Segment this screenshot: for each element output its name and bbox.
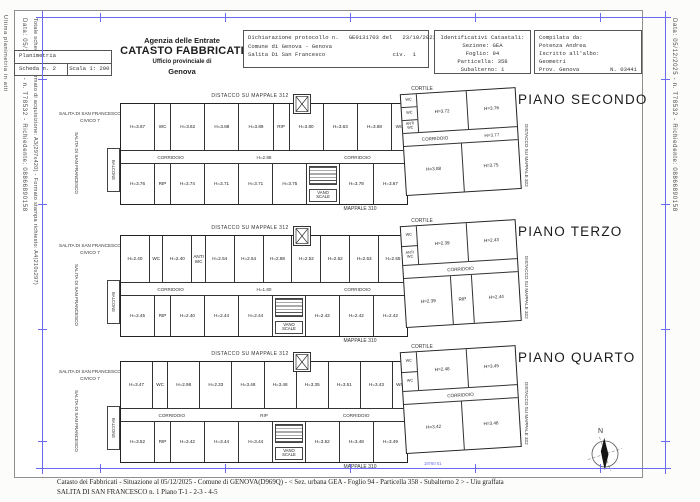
room-height-label: WC (156, 382, 164, 387)
room-height-label: H=2.43 (315, 313, 330, 318)
room-height-label: H=2.52 (299, 256, 314, 261)
declaration-street: Salita Di San Francesco (248, 51, 325, 60)
street-vertical-label: SALITA DI SAN FRANCESCO (74, 390, 79, 458)
room-height-label: H=3.62 (180, 124, 195, 129)
corridor-row: CORRIDOIOH=2.88CORRIDOIO (121, 150, 407, 164)
calibration-tick (100, 464, 101, 473)
stairwell-cell: VANO SCALE (273, 296, 305, 336)
cadastral-particella: Particella: 358 (439, 58, 526, 66)
calibration-tick (661, 329, 670, 330)
wing-bottom-row: H=3.42H=3.48 (404, 398, 521, 453)
room-cell: RIP (274, 104, 290, 150)
stairwell-cell: VANO SCALE (273, 422, 305, 462)
room-height-label: H=2.88 (270, 256, 285, 261)
room-height-label: H=3.42 (426, 424, 441, 430)
planimetria-label: Planimetria (15, 51, 111, 64)
room-height-label: H=3.75 (483, 163, 498, 169)
room-height-label: H=3.80 (299, 124, 314, 129)
declaration-protocol: Dichiarazione protocollo n. GE0131703 de… (248, 34, 424, 43)
scala-label: Scala 1: 200 (67, 64, 111, 76)
calibration-tick (225, 464, 226, 473)
calibration-tick (38, 204, 47, 205)
room-cell: RIP (155, 422, 171, 462)
room-cell: H=3.75 (273, 164, 307, 204)
agency-name: Agenzia delle Entrate (120, 36, 244, 45)
stairwell-label: VANO SCALE (275, 447, 302, 460)
room-cell: H=3.42 (171, 422, 205, 462)
room-height-label: RIP (159, 313, 167, 318)
corridor-label: CORRIDOIO (157, 287, 184, 292)
agency-block: Agenzia delle Entrate CATASTO FABBRICATI… (120, 36, 244, 76)
margin-text-ultima: Ultima planimetria in atti (2, 15, 8, 92)
building-wing-block: WCWCANTI WCH=3.72H=3.76CORRIDOIOH=3.77H=… (400, 87, 522, 196)
room-cell: H=2.43 (306, 296, 340, 336)
room-height-label: RIP (458, 297, 466, 303)
room-cell: H=3.47 (121, 362, 153, 408)
room-cell: WC (150, 236, 164, 282)
calibration-frame-line (665, 11, 666, 474)
room-cell: H=3.71 (205, 164, 239, 204)
room-cell: H=2.44 (205, 296, 239, 336)
cadastral-title: Identificativi Catastali: (439, 34, 526, 42)
room-cell: WC (155, 104, 171, 150)
corridor-label: CORRIDOIO (157, 155, 184, 160)
room-cell: H=3.72 (417, 91, 469, 132)
corridor-row: CORRIDOIOH=1.80CORRIDOIO (121, 282, 407, 296)
room-height-label: H=2.40 (180, 313, 195, 318)
room-height-label: H=3.48 (240, 382, 255, 387)
rooms-top-row: H=3.47WCH=2.98H=2.33H=3.48H=3.48H=3.35H=… (121, 362, 407, 408)
room-height-label: H=2.43 (484, 238, 499, 244)
planimetria-scala-box: Planimetria Scheda n. 2 Scala 1: 200 (14, 50, 112, 76)
calibration-frame-line (36, 17, 671, 18)
room-height-label: H=3.88 (426, 166, 441, 172)
room-cell: H=3.71 (239, 164, 273, 204)
balcone-label: BALCONE (111, 418, 116, 438)
building-main-block: H=3.47WCH=2.98H=2.33H=3.48H=3.48H=3.35H=… (120, 361, 408, 463)
elevator-shaft-icon (293, 226, 311, 246)
room-cell: H=3.48 (232, 362, 264, 408)
stairwell-cell: VANO SCALE (307, 164, 339, 204)
room-height-label: H=3.52 (315, 439, 330, 444)
mappale-label: MAPPALE 310 (290, 464, 430, 470)
plan-title: PIANO TERZO (518, 224, 622, 239)
rooms-bottom-row: H=3.76RIPH=3.74H=3.71H=3.71H=3.75VANO SC… (121, 164, 407, 204)
room-cell: H=3.48 (265, 362, 297, 408)
calibration-tick (475, 464, 476, 473)
room-height-label: H=3.48 (349, 439, 364, 444)
plan-title: PIANO QUARTO (518, 350, 635, 365)
room-height-label: H=2.62 (328, 256, 343, 261)
calibration-tick (600, 13, 601, 22)
building-main-block: H=2.40WCH=2.40ANTI WCH=2.54H=2.54H=2.88H… (120, 235, 408, 337)
room-height-label: H=3.88 (367, 124, 382, 129)
compiler-name: Potenza Andrea (539, 42, 637, 50)
room-cell: H=2.43 (466, 220, 517, 261)
room-height-label: H=2.40 (127, 256, 142, 261)
calibration-tick (225, 13, 226, 22)
room-height-label: H=3.88 (214, 124, 229, 129)
room-cell: H=3.44 (239, 422, 273, 462)
room-cell: H=3.67 (374, 164, 407, 204)
calibration-tick (38, 79, 47, 80)
balcone-tab: BALCONE (107, 148, 120, 192)
room-cell: H=3.63 (324, 104, 358, 150)
distacco-right-label: DISTACCO SU MAPPALE 322 (524, 382, 529, 462)
room-height-label: H=2.42 (383, 313, 398, 318)
margin-text-right: Data: 05/12/2025 - n. T78532 - Richieden… (671, 18, 677, 212)
room-height-label: RIP (159, 181, 167, 186)
room-cell: H=2.39 (404, 276, 454, 327)
calibration-tick (100, 13, 101, 22)
compiler-albo: Iscritto all'albo: (539, 50, 637, 58)
margin-text-left-1: Data: 05/12/2025 - n. T78532 - Richieden… (21, 18, 27, 212)
corridor-label: CORRIDOIO (343, 413, 370, 418)
compiler-title: Compilata da: (539, 34, 637, 42)
room-cell: H=3.76 (466, 88, 517, 129)
compiler-box: Compilata da: Potenza Andrea Iscritto al… (534, 30, 642, 74)
plan-title: PIANO SECONDO (518, 92, 648, 107)
calibration-tick (38, 441, 47, 442)
wing-side-cell: WC (402, 372, 418, 391)
room-cell: H=3.89 (239, 104, 273, 150)
catasto-title: CATASTO FABBRICATI (120, 45, 244, 59)
room-height-label: H=3.67 (130, 124, 145, 129)
stairwell-label: VANO SCALE (309, 189, 336, 202)
room-height-label: H=2.39 (421, 299, 436, 305)
room-cell: H=3.43 (361, 362, 393, 408)
distacco-top-label: DISTACCO SU MAPPALE 312 (150, 351, 350, 357)
room-cell: H=3.48 (461, 398, 520, 449)
room-height-label: H=2.45 (130, 313, 145, 318)
room-cell: H=2.42 (374, 296, 407, 336)
wing-top-row: WCWCANTI WCH=3.72H=3.76 (401, 88, 517, 133)
stairwell-label: VANO SCALE (275, 321, 302, 334)
scheda-label: Scheda n. 2 (15, 64, 67, 76)
wing-side-cell: WC (402, 107, 418, 121)
room-cell: H=2.44 (472, 272, 521, 323)
room-height-label: H=2.48 (435, 367, 450, 373)
footer-line-1: Catasto dei Fabbricati - Situazione al 0… (57, 479, 504, 486)
room-height-label: H=2.54 (212, 256, 227, 261)
calibration-tick (475, 13, 476, 22)
compass: N (583, 424, 627, 474)
room-height-label: H=2.39 (435, 241, 450, 247)
footer-line-2: SALITA DI SAN FRANCESCO n. 1 Piano T-1 -… (57, 489, 218, 496)
room-height-label: WC (152, 256, 160, 261)
room-height-label: H=2.55 (386, 256, 401, 261)
building-main-block: H=3.67WCH=3.62H=3.88H=3.89RIPH=3.80H=3.6… (120, 103, 408, 205)
room-cell: H=3.51 (329, 362, 361, 408)
distacco-right-label: DISTACCO SU MAPPALE 322 (524, 124, 529, 204)
calibration-tick (350, 13, 351, 22)
room-height-label: H=2.54 (241, 256, 256, 261)
room-cell: H=3.52 (306, 422, 340, 462)
room-cell: H=3.88 (358, 104, 392, 150)
wing-side-cell: WC (401, 352, 417, 372)
room-height-label: H=2.44 (214, 313, 229, 318)
street-address-label: SALITA DI SAN FRANCESCO CIVICO 7 (50, 242, 130, 257)
floor-plan: SALITA DI SAN FRANCESCO CIVICO 7DISTACCO… (50, 344, 650, 476)
compass-north-label: N (598, 428, 603, 435)
room-height-label: H=3.52 (130, 439, 145, 444)
room-height-label: H=3.44 (214, 439, 229, 444)
calibration-tick (661, 204, 670, 205)
rooms-bottom-row: H=3.52RIPH=3.42H=3.44H=3.44VANO SCALEH=3… (121, 422, 407, 462)
room-height-label: H=2.53 (357, 256, 372, 261)
room-height-label: H=3.74 (180, 181, 195, 186)
room-height-label: RIP (277, 124, 285, 129)
rooms-bottom-row: H=2.45RIPH=2.40H=2.44H=2.44VANO SCALEH=2… (121, 296, 407, 336)
room-cell: H=2.48 (417, 349, 469, 390)
declaration-civ: civ. 1 (393, 51, 417, 60)
rooms-top-row: H=2.40WCH=2.40ANTI WCH=2.54H=2.54H=2.88H… (121, 236, 407, 282)
corridor-label: CORRIDOIO (447, 391, 474, 398)
room-height-label: H=3.71 (248, 181, 263, 186)
room-height-label: H=3.45 (484, 364, 499, 370)
corridor-label: CORRIDOIO (159, 413, 186, 418)
declaration-comune: Comune di Genova - Genova (248, 43, 424, 52)
room-cell: H=2.88 (264, 236, 293, 282)
rooms-top-row: H=3.67WCH=3.62H=3.88H=3.89RIPH=3.80H=3.6… (121, 104, 407, 150)
room-cell: H=2.33 (200, 362, 232, 408)
room-height-label: RIP (159, 439, 167, 444)
calibration-frame-line (36, 468, 671, 469)
calibration-frame-line (42, 11, 43, 474)
room-cell: H=2.53 (350, 236, 379, 282)
room-height-label: H=2.40 (170, 256, 185, 261)
room-cell: H=3.52 (121, 422, 155, 462)
room-cell: H=2.44 (239, 296, 273, 336)
floor-plan: SALITA DI SAN FRANCESCO CIVICO 7DISTACCO… (50, 218, 650, 350)
room-height-label: H=3.75 (282, 181, 297, 186)
calibration-tick (661, 79, 670, 80)
room-height-label: H=3.63 (333, 124, 348, 129)
corridor-label: CORRIDOIO (344, 287, 371, 292)
room-cell: H=2.54 (206, 236, 235, 282)
cadastral-sezione: Sezione: GEA (439, 42, 526, 50)
room-cell: H=2.45 (121, 296, 155, 336)
room-cell: H=3.78 (340, 164, 374, 204)
room-cell: H=3.88 (205, 104, 239, 150)
room-cell: H=3.45 (466, 346, 517, 387)
room-height-label: H=3.35 (305, 382, 320, 387)
calibration-tick (38, 329, 47, 330)
room-height-label: H=2.42 (349, 313, 364, 318)
compiler-number: N. 03441 (610, 66, 637, 74)
room-cell: H=3.49 (374, 422, 407, 462)
cadastral-foglio: Foglio: 94 (439, 50, 526, 58)
elevator-shaft-icon (293, 352, 311, 372)
balcone-label: BALCONE (111, 160, 116, 180)
room-cell: H=3.48 (340, 422, 374, 462)
room-cell: H=3.62 (171, 104, 205, 150)
corridor-height-label: RIP (260, 413, 268, 418)
street-vertical-label: SALITA DI SAN FRANCESCO (74, 132, 79, 200)
room-height-label: WC (159, 124, 167, 129)
building-wing-block: WCWCH=2.48H=3.45CORRIDOIOH=3.42H=3.48 (400, 345, 522, 454)
room-height-label: H=3.67 (383, 181, 398, 186)
wing-bottom-row: H=2.39RIPH=2.44 (404, 272, 521, 327)
room-height-label: H=2.33 (208, 382, 223, 387)
room-height-label: H=2.44 (248, 313, 263, 318)
room-cell: H=2.40 (171, 296, 205, 336)
balcone-label: BALCONE (111, 292, 116, 312)
distacco-top-label: DISTACCO SU MAPPALE 312 (150, 225, 350, 231)
room-cell: H=2.98 (168, 362, 200, 408)
room-cell: RIP (155, 164, 171, 204)
street-address-label: SALITA DI SAN FRANCESCO CIVICO 7 (50, 368, 130, 383)
distacco-right-label: DISTACCO SU MAPPALE 322 (524, 256, 529, 336)
room-cell: WC (153, 362, 168, 408)
room-cell: ANTI WC (192, 236, 206, 282)
room-height-label: H=3.43 (369, 382, 384, 387)
balcone-tab: BALCONE (107, 280, 120, 324)
corridor-label: CORRIDOIO (422, 135, 449, 142)
room-height-label: H=3.71 (214, 181, 229, 186)
room-height-label: H=3.44 (248, 439, 263, 444)
balcone-tab: BALCONE (107, 406, 120, 450)
cadastral-subalterno: Subalterno: 1 (439, 66, 526, 74)
wing-top-row: WCWCH=2.48H=3.45 (401, 346, 517, 391)
calibration-tick (661, 441, 670, 442)
street-vertical-label: SALITA DI SAN FRANCESCO (74, 264, 79, 332)
corridor-row: CORRIDOIORIPCORRIDOIO (121, 408, 407, 422)
room-height-label: H=3.48 (483, 421, 498, 427)
wing-side-cell: ANTI WC (402, 120, 418, 133)
ufficio-label: Ufficio provinciale di (120, 59, 244, 67)
room-cell: H=2.40 (121, 236, 150, 282)
corridor-height-label: H=3.77 (484, 132, 499, 138)
declaration-box: Dichiarazione protocollo n. GE0131703 de… (243, 30, 429, 68)
wing-side-cell: ANTI WC (402, 246, 418, 265)
corridor-height-label: H=1.80 (257, 287, 272, 292)
wing-side-cell: WC (401, 94, 417, 108)
ufficio-city: Genova (120, 67, 244, 76)
room-height-label: H=3.76 (130, 181, 145, 186)
room-cell: RIP (155, 296, 171, 336)
corridor-height-label: H=2.88 (257, 155, 272, 160)
street-address-label: SALITA DI SAN FRANCESCO CIVICO 7 (50, 110, 130, 125)
room-height-label: H=3.42 (180, 439, 195, 444)
room-cell: H=2.42 (340, 296, 374, 336)
room-height-label: H=3.76 (484, 106, 499, 112)
page: { "margins": { "left_outer": "Ultima pla… (0, 0, 700, 502)
elevator-shaft-icon (293, 94, 311, 114)
room-height-label: H=3.49 (383, 439, 398, 444)
room-cell: H=3.42 (404, 402, 464, 453)
room-cell: H=2.62 (321, 236, 350, 282)
room-height-label: H=3.51 (337, 382, 352, 387)
calibration-tick (600, 464, 601, 473)
room-height-label: ANTI WC (192, 254, 205, 264)
room-cell: H=3.44 (205, 422, 239, 462)
room-cell: H=2.39 (417, 223, 469, 264)
distacco-top-label: DISTACCO SU MAPPALE 312 (150, 93, 350, 99)
room-height-label: H=3.72 (435, 109, 450, 115)
room-height-label: H=2.98 (176, 382, 191, 387)
floor-plan: SALITA DI SAN FRANCESCO CIVICO 7DISTACCO… (50, 86, 650, 218)
room-height-label: H=3.78 (349, 181, 364, 186)
mappale-label: MAPPALE 310 (290, 206, 430, 212)
room-cell: H=3.67 (121, 104, 155, 150)
room-height-label: H=3.89 (249, 124, 264, 129)
building-wing-block: WCANTI WCH=2.39H=2.43CORRIDOIOH=2.39RIPH… (400, 219, 522, 328)
wing-bottom-row: H=3.88H=3.75 (404, 140, 521, 195)
room-height-label: H=3.48 (273, 382, 288, 387)
compiler-profession: Geometri (539, 58, 637, 66)
room-cell: H=3.76 (121, 164, 155, 204)
room-height-label: H=3.47 (129, 382, 144, 387)
corridor-label: CORRIDOIO (344, 155, 371, 160)
wing-side-cell: WC (401, 226, 417, 246)
cadastral-box: Identificativi Catastali: Sezione: GEA F… (434, 30, 531, 74)
room-cell: H=3.74 (171, 164, 205, 204)
calibration-tick (350, 464, 351, 473)
room-cell: H=2.54 (235, 236, 264, 282)
room-cell: RIP (451, 275, 475, 324)
wing-top-row: WCANTI WCH=2.39H=2.43 (401, 220, 517, 265)
room-cell: H=3.75 (461, 140, 520, 191)
compiler-prov: Prov. Genova (539, 66, 579, 74)
corridor-label: CORRIDOIO (447, 265, 474, 272)
blue-stamp: 18760 01 (424, 461, 441, 466)
room-height-label: H=2.44 (489, 294, 504, 300)
room-cell: H=2.40 (163, 236, 192, 282)
room-cell: H=3.88 (404, 144, 464, 195)
